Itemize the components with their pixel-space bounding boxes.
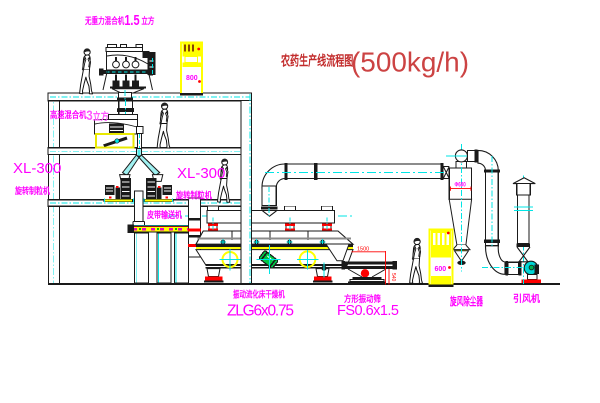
svg-text:XL-300: XL-300 <box>13 160 61 177</box>
svg-text:600: 600 <box>435 266 447 273</box>
svg-text:ZLG6x0.75: ZLG6x0.75 <box>227 303 294 320</box>
svg-text:XL-300: XL-300 <box>177 165 225 182</box>
svg-text:引风机: 引风机 <box>513 293 541 304</box>
svg-text:540: 540 <box>390 273 396 282</box>
svg-text:皮带输送机: 皮带输送机 <box>146 209 183 220</box>
svg-text:旋风除尘器: 旋风除尘器 <box>449 294 483 307</box>
svg-text:旋转制粒机: 旋转制粒机 <box>175 190 213 201</box>
svg-text:800: 800 <box>186 75 198 82</box>
svg-text:农药生产线流程图: 农药生产线流程图 <box>280 53 353 69</box>
svg-text:1500: 1500 <box>357 247 369 253</box>
svg-text:振动流化床干燥机: 振动流化床干燥机 <box>233 288 285 299</box>
svg-text:(500kg/h): (500kg/h) <box>351 47 469 78</box>
svg-text:Φ600: Φ600 <box>455 182 466 189</box>
svg-text:旋转制粒机: 旋转制粒机 <box>14 185 51 196</box>
svg-text:FS0.6x1.5: FS0.6x1.5 <box>337 303 399 319</box>
